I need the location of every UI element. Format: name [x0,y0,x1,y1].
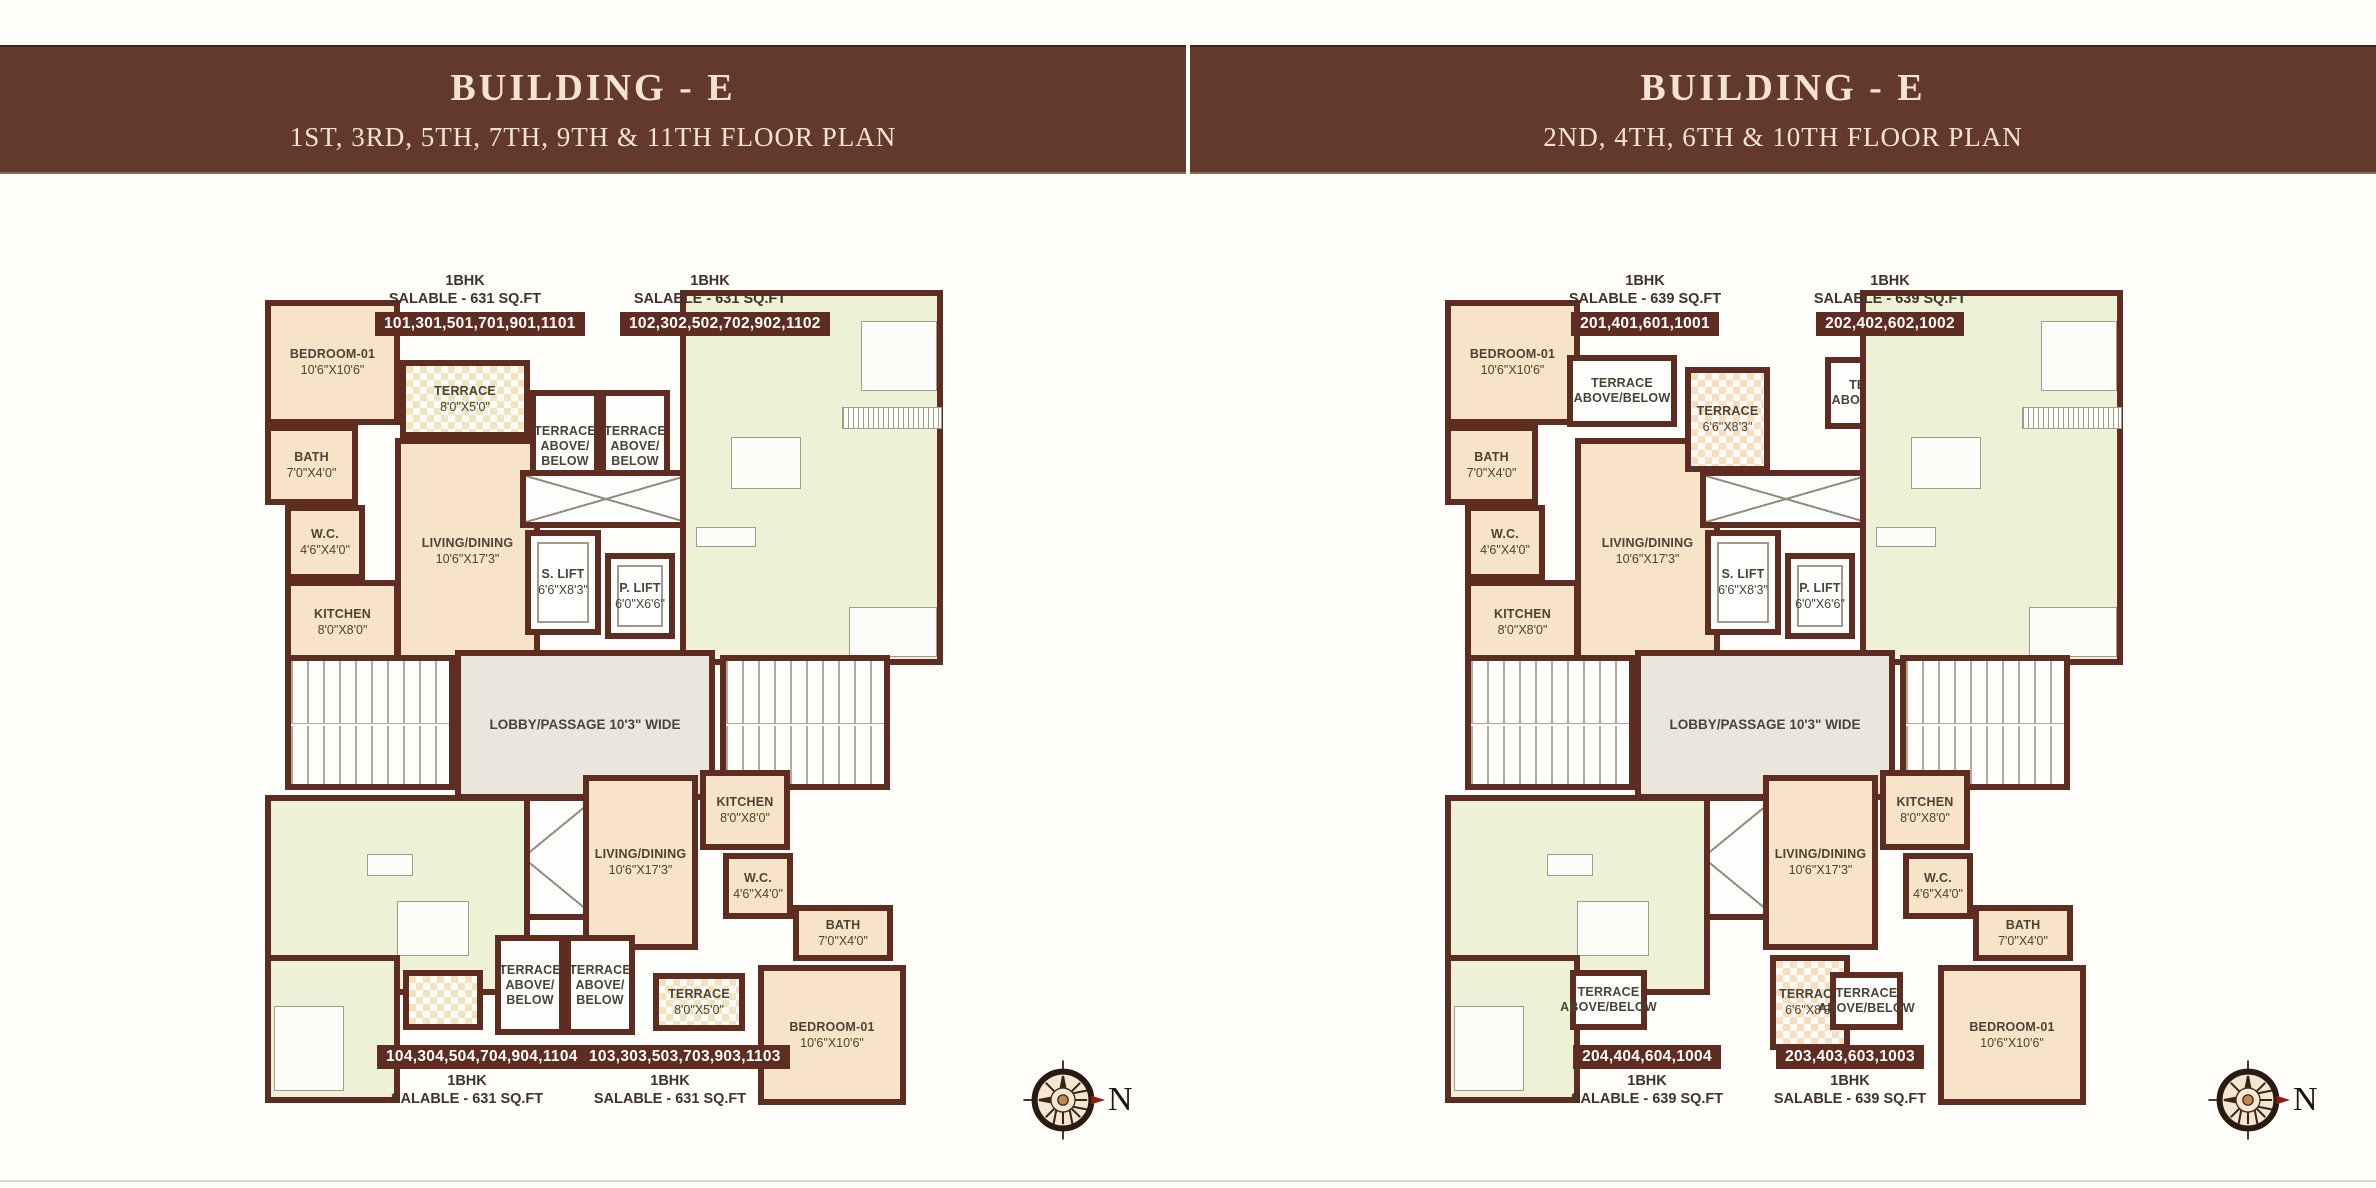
room-label: TERRACE ABOVE/ BELOW [569,963,631,1008]
unit-label-bottom-left: 104,304,504,704,904,1104 1BHK SALABLE - … [377,1045,557,1107]
dining-table-furniture [1911,437,1981,489]
room-label: TERRACE ABOVE/BELOW [1560,985,1657,1015]
room-bedroom-01: BEDROOM-01 10'6"X10'6" [758,965,906,1105]
bed-furniture [1454,1006,1524,1091]
header-building-right: BUILDING - E 2ND, 4TH, 6TH & 10TH FLOOR … [1190,45,2376,174]
compass-rose-left: N [1020,1052,1170,1147]
room-bath: BATH 7'0"X4'0" [793,905,893,961]
unit-top-right-area [680,290,943,665]
unit-numbers-badge: 101,301,501,701,901,1101 [375,312,585,336]
room-label: KITCHEN [314,607,371,622]
room-label: BATH [294,450,329,465]
service-lift: S. LIFT 6'6"X8'3" [525,530,601,635]
room-dims: 8'0"X8'0" [720,811,770,826]
terrace: TERRACE 8'0"X5'0" [400,360,530,438]
bed-furniture [274,1006,344,1091]
room-kitchen: KITCHEN 8'0"X8'0" [285,580,400,665]
room-label: BATH [826,918,861,933]
room-wc: W.C. 4'6"X4'0" [723,853,793,919]
unit-type: 1BHK [1800,273,1980,289]
room-label: W.C. [1924,871,1952,886]
unit-type: 1BHK [375,273,555,289]
room-dims: 4'6"X4'0" [1480,543,1530,558]
room-bath: BATH 7'0"X4'0" [265,425,358,505]
room-dims: 7'0"X4'0" [1467,466,1517,481]
unit-label-bottom-left: 204,404,604,1004 1BHK SALABLE - 639 SQ.F… [1557,1045,1737,1107]
room-dims: 10'6"X17'3" [436,552,500,567]
terrace-above-below: TERRACE ABOVE/ BELOW [565,935,635,1035]
room-label: LIVING/DINING [422,536,514,551]
unit-salable-area: SALABLE - 639 SQ.FT [1800,291,1980,307]
dining-table-furniture [731,437,801,489]
room-dims: 10'6"X17'3" [1616,552,1680,567]
room-dims: 10'6"X10'6" [1980,1036,2044,1051]
unit-salable-area: SALABLE - 631 SQ.FT [580,1091,760,1107]
unit-numbers-badge: 203,403,603,1003 [1776,1045,1924,1069]
room-wc: W.C. 4'6"X4'0" [1903,853,1973,919]
room-label: S. LIFT [541,567,584,582]
room-dims: 10'6"X10'6" [301,363,365,378]
room-dims: 10'6"X10'6" [800,1036,864,1051]
room-bath: BATH 7'0"X4'0" [1973,905,2073,961]
room-dims: 7'0"X4'0" [1998,934,2048,949]
room-label: TERRACE [434,384,496,399]
page-title: BUILDING - E [450,66,735,110]
unit-type: 1BHK [1760,1073,1940,1089]
room-living-dining: LIVING/DINING 10'6"X17'3" [1763,775,1878,950]
compass-icon [2205,1057,2291,1143]
room-label: TERRACE ABOVE/BELOW [1818,986,1915,1016]
unit-numbers-badge: 104,304,504,704,904,1104 [377,1045,587,1069]
room-wc: W.C. 4'6"X4'0" [1465,505,1545,580]
room-label: BEDROOM-01 [290,347,375,362]
unit-label-bottom-right: 203,403,603,1003 1BHK SALABLE - 639 SQ.F… [1760,1045,1940,1107]
room-label: LIVING/DINING [595,847,687,862]
room-dims: 7'0"X4'0" [287,466,337,481]
terrace: TERRACE 8'0"X5'0" [653,973,745,1031]
unit-label-top-right: 1BHK SALABLE - 639 SQ.FT 202,402,602,100… [1800,273,1980,336]
terrace-above-below: TERRACE ABOVE/BELOW [1567,355,1677,427]
unit-numbers-badge: 201,401,601,1001 [1571,312,1719,336]
unit-numbers-badge: 102,302,502,702,902,1102 [620,312,830,336]
room-label: BEDROOM-01 [1969,1020,2054,1035]
room-dims: 6'0"X6'6" [1795,597,1845,612]
unit-label-bottom-right: 103,303,503,703,903,1103 1BHK SALABLE - … [580,1045,760,1107]
room-label: TERRACE ABOVE/ BELOW [499,963,561,1008]
unit-numbers-badge: 202,402,602,1002 [1816,312,1964,336]
room-dims: 8'0"X8'0" [1498,623,1548,638]
unit-salable-area: SALABLE - 631 SQ.FT [620,291,800,307]
room-dims: 6'6"X8'3" [1718,583,1768,598]
room-wc: W.C. 4'6"X4'0" [285,505,365,580]
sofa-furniture [1547,854,1593,876]
room-label: LIVING/DINING [1775,847,1867,862]
room-dims: 8'0"X5'0" [674,1003,724,1018]
bed-furniture [861,321,937,391]
room-label: KITCHEN [1494,607,1551,622]
room-kitchen: KITCHEN 8'0"X8'0" [1880,770,1970,850]
service-lift: S. LIFT 6'6"X8'3" [1705,530,1781,635]
unit-top-right-area [1860,290,2123,665]
staircase-left [285,655,455,790]
room-label: W.C. [1491,527,1519,542]
sofa-furniture [1876,527,1936,547]
room-label: KITCHEN [1897,795,1954,810]
room-kitchen: KITCHEN 8'0"X8'0" [700,770,790,850]
wardrobe-furniture [2022,407,2122,429]
room-label: LIVING/DINING [1602,536,1694,551]
floor-plan-odd-floors: 1BHK SALABLE - 631 SQ.FT 101,301,501,701… [253,255,950,1110]
terrace-above-below: TERRACE ABOVE/BELOW [1570,970,1647,1030]
unit-numbers-badge: 204,404,604,1004 [1573,1045,1721,1069]
unit-salable-area: SALABLE - 631 SQ.FT [377,1091,557,1107]
terrace-above-below: TERRACE ABOVE/ BELOW [495,935,565,1035]
room-dims: 6'6"X8'3" [538,583,588,598]
room-label: P. LIFT [619,581,660,596]
terrace-bottom-left [403,970,483,1030]
bed-furniture [2041,321,2117,391]
room-label: TERRACE ABOVE/BELOW [1574,376,1671,406]
lift-shaft-cross [520,470,692,528]
unit-type: 1BHK [620,273,800,289]
unit-type: 1BHK [580,1073,760,1089]
room-bath: BATH 7'0"X4'0" [1445,425,1538,505]
page-title: BUILDING - E [1640,66,1925,110]
terrace-above-below: TERRACE ABOVE/BELOW [1830,972,1903,1030]
room-dims: 10'6"X17'3" [1789,863,1853,878]
lobby-label: LOBBY/PASSAGE 10'3" WIDE [490,717,681,733]
compass-icon [1020,1057,1106,1143]
north-label: N [2293,1081,2318,1119]
passenger-lift: P. LIFT 6'0"X6'6" [605,553,675,639]
terrace: TERRACE 6'6"X8'3" [1685,367,1770,472]
room-label: S. LIFT [1721,567,1764,582]
room-living-dining: LIVING/DINING 10'6"X17'3" [1575,438,1720,665]
wardrobe-furniture [842,407,942,429]
room-label: P. LIFT [1799,581,1840,596]
page-canvas: BUILDING - E 1ST, 3RD, 5TH, 7TH, 9TH & 1… [0,0,2376,1188]
unit-type: 1BHK [1557,1073,1737,1089]
passenger-lift: P. LIFT 6'0"X6'6" [1785,553,1855,639]
sofa-furniture [367,854,413,876]
room-living-dining: LIVING/DINING 10'6"X17'3" [583,775,698,950]
header-building-left: BUILDING - E 1ST, 3RD, 5TH, 7TH, 9TH & 1… [0,45,1186,174]
floor-plan-subtitle: 1ST, 3RD, 5TH, 7TH, 9TH & 11TH FLOOR PLA… [290,122,897,153]
lobby-label: LOBBY/PASSAGE 10'3" WIDE [1670,717,1861,733]
room-kitchen: KITCHEN 8'0"X8'0" [1465,580,1580,665]
room-label: W.C. [744,871,772,886]
unit-label-top-left: 1BHK SALABLE - 639 SQ.FT 201,401,601,100… [1555,273,1735,336]
unit-salable-area: SALABLE - 639 SQ.FT [1555,291,1735,307]
room-dims: 4'6"X4'0" [300,543,350,558]
unit-type: 1BHK [1555,273,1735,289]
room-dims: 7'0"X4'0" [818,934,868,949]
room-label: TERRACE ABOVE/ BELOW [534,424,596,469]
room-dims: 8'0"X8'0" [1900,811,1950,826]
room-label: BATH [2006,918,2041,933]
room-label: TERRACE ABOVE/ BELOW [604,424,666,469]
unit-type: 1BHK [377,1073,557,1089]
unit-label-top-right: 1BHK SALABLE - 631 SQ.FT 102,302,502,702… [620,273,800,336]
unit-salable-area: SALABLE - 631 SQ.FT [375,291,555,307]
kitchen-counter-furniture [2029,607,2117,657]
compass-rose-right: N [2205,1052,2355,1147]
room-dims: 6'6"X8'3" [1703,420,1753,435]
room-living-dining: LIVING/DINING 10'6"X17'3" [395,438,540,665]
unit-salable-area: SALABLE - 639 SQ.FT [1557,1091,1737,1107]
room-label: BATH [1474,450,1509,465]
room-label: TERRACE [1697,404,1759,419]
unit-salable-area: SALABLE - 639 SQ.FT [1760,1091,1940,1107]
room-dims: 10'6"X10'6" [1481,363,1545,378]
north-label: N [1108,1081,1133,1119]
bottom-divider [0,1180,2376,1182]
room-dims: 6'0"X6'6" [615,597,665,612]
room-label: TERRACE [668,987,730,1002]
room-label: W.C. [311,527,339,542]
lift-shaft-cross [1700,470,1872,528]
unit-label-top-left: 1BHK SALABLE - 631 SQ.FT 101,301,501,701… [375,273,555,336]
room-label: KITCHEN [717,795,774,810]
kitchen-counter-furniture [849,607,937,657]
room-dims: 8'0"X5'0" [440,400,490,415]
dining-table-furniture [397,901,469,956]
dining-table-furniture [1577,901,1649,956]
room-label: BEDROOM-01 [789,1020,874,1035]
unit-numbers-badge: 103,303,503,703,903,1103 [580,1045,790,1069]
room-dims: 4'6"X4'0" [1913,887,1963,902]
floor-plan-even-floors: 1BHK SALABLE - 639 SQ.FT 201,401,601,100… [1433,255,2130,1110]
room-label: BEDROOM-01 [1470,347,1555,362]
room-bedroom-01: BEDROOM-01 10'6"X10'6" [1938,965,2086,1105]
room-dims: 4'6"X4'0" [733,887,783,902]
floor-plan-subtitle: 2ND, 4TH, 6TH & 10TH FLOOR PLAN [1543,122,2023,153]
room-dims: 10'6"X17'3" [609,863,673,878]
room-dims: 8'0"X8'0" [318,623,368,638]
staircase-left [1465,655,1635,790]
sofa-furniture [696,527,756,547]
